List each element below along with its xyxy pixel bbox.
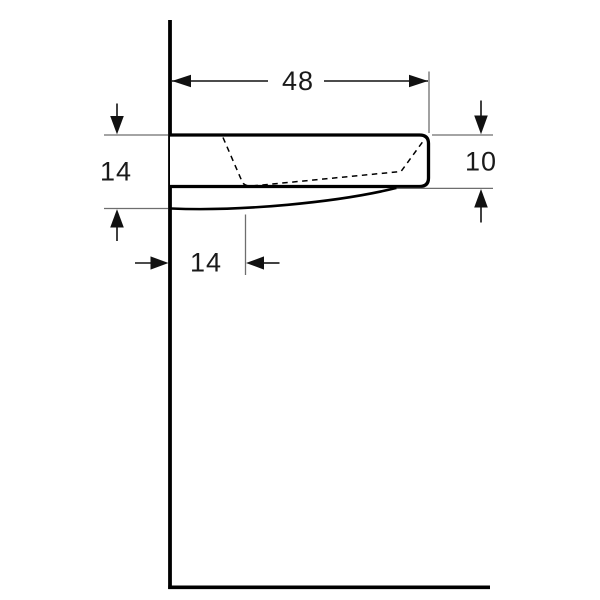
dimension-bottom-offset: 14 [135, 215, 280, 278]
arrowhead-up-icon [110, 209, 124, 227]
dimension-label-bottom-offset: 14 [190, 248, 222, 278]
dimension-label-top-width: 48 [282, 66, 314, 96]
dimension-left-wall-height: 14 [100, 104, 168, 242]
technical-drawing: 48 10 14 14 [0, 0, 600, 600]
dimension-label-left-wall-height: 14 [100, 157, 132, 187]
arrowhead-left-icon [172, 75, 191, 87]
arrowhead-up-icon [474, 189, 488, 208]
washbasin-side-view-svg: 48 10 14 14 [0, 0, 600, 600]
dimension-label-right-front-height: 10 [465, 147, 497, 177]
arrowhead-down-icon [110, 116, 124, 134]
arrowhead-left-icon [246, 256, 264, 269]
basin-rim-outline [170, 135, 429, 187]
arrowhead-right-icon [151, 256, 169, 269]
basin-underside-curve [171, 188, 397, 209]
arrowhead-right-icon [409, 75, 428, 87]
dimension-top-width: 48 [172, 66, 429, 133]
arrowhead-down-icon [474, 116, 488, 135]
